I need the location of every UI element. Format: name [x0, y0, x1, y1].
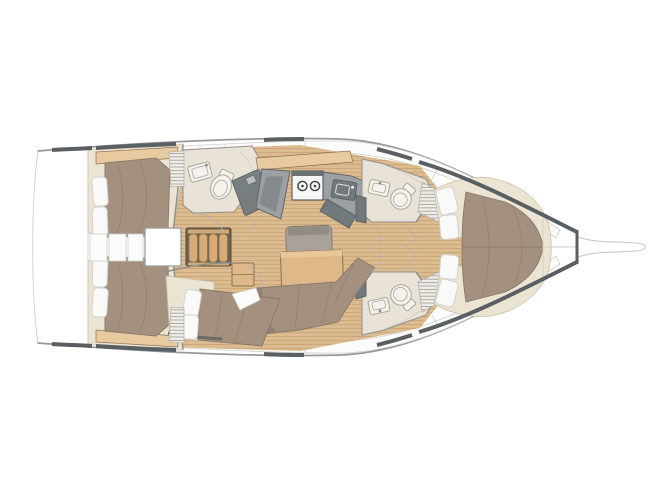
companionway-corridor	[90, 228, 231, 266]
yacht-floorplan	[0, 0, 667, 500]
aft-cabin-starboard	[88, 144, 183, 237]
step-tread	[199, 234, 208, 262]
pillow	[92, 177, 109, 207]
bowsprit	[578, 237, 645, 257]
pillow	[92, 207, 108, 237]
aft-berth-starboard	[105, 158, 170, 237]
mid-cabin-steps	[232, 263, 254, 286]
step-tread	[219, 234, 228, 262]
pillow	[439, 214, 459, 239]
locker-panel	[128, 234, 143, 261]
companionway-steps	[186, 228, 231, 266]
stove	[292, 171, 323, 200]
pillow	[92, 258, 108, 288]
pillow	[439, 254, 459, 279]
galley-sink	[331, 179, 358, 201]
shower-partition	[356, 195, 366, 223]
step-tread	[209, 234, 218, 262]
locker-panel	[90, 234, 107, 261]
saloon-bench	[286, 225, 333, 254]
step-tread	[189, 234, 198, 262]
transom-curve	[33, 151, 38, 343]
aft-berth-port	[105, 257, 170, 336]
engine-compartment	[145, 228, 181, 266]
yacht-floorplan-canvas	[0, 0, 667, 500]
locker-panel	[109, 234, 126, 261]
pillow	[92, 288, 109, 318]
